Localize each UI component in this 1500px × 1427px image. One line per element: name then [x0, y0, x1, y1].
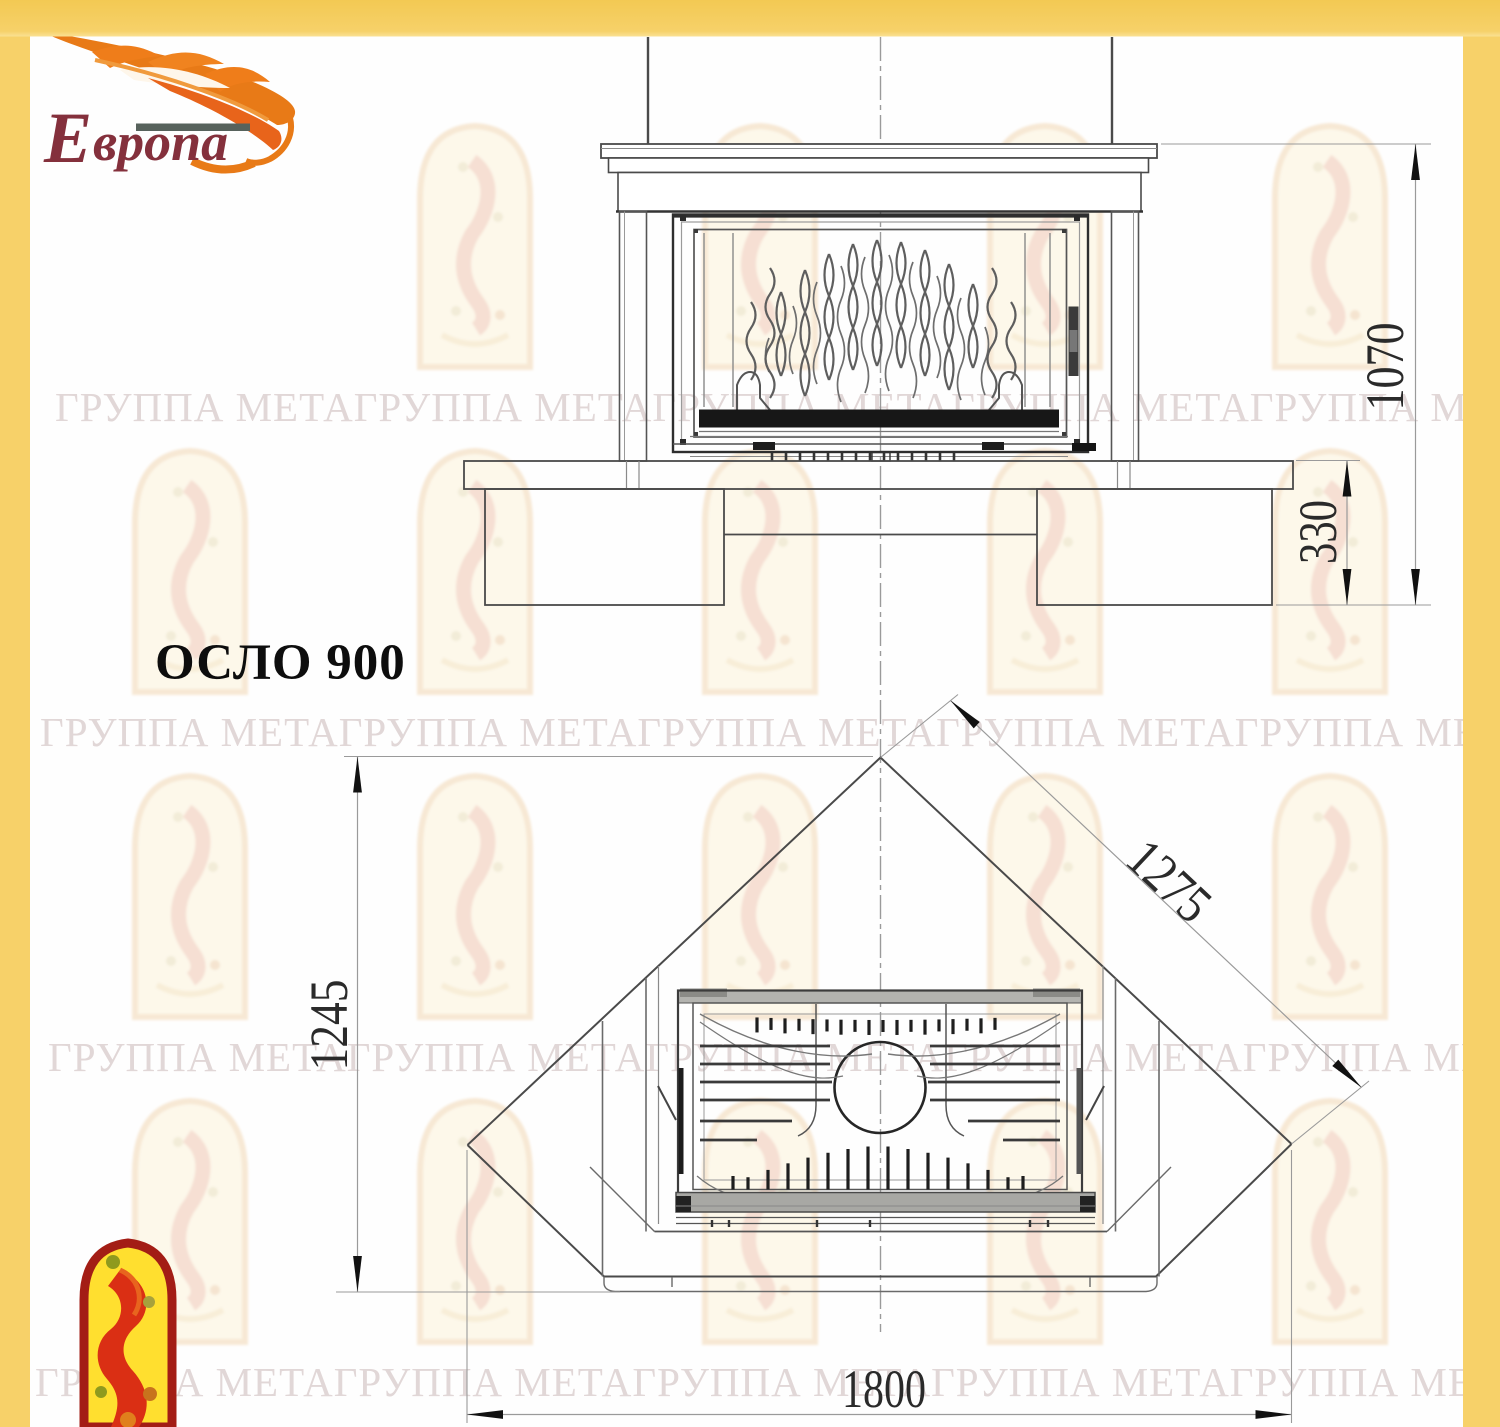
svg-text:1800: 1800: [842, 1359, 926, 1419]
svg-text:1275: 1275: [1115, 828, 1223, 935]
svg-text:1245: 1245: [299, 980, 359, 1071]
svg-text:ГРУППА МЕТАГРУППА МЕТАГРУППА М: ГРУППА МЕТАГРУППА МЕТАГРУППА МЕТАГРУППА …: [48, 1034, 1500, 1080]
svg-text:ОСЛО 900: ОСЛО 900: [155, 635, 406, 691]
svg-text:1070: 1070: [1355, 323, 1415, 411]
svg-text:ГРУППА МЕТАГРУППА МЕТАГРУППА М: ГРУППА МЕТАГРУППА МЕТАГРУППА МЕТАГРУППА …: [40, 709, 1500, 755]
svg-text:вропа: вропа: [93, 112, 228, 172]
svg-text:ГРУППА МЕТАГРУППА МЕТАГРУППА М: ГРУППА МЕТАГРУППА МЕТАГРУППА МЕТАГРУППА …: [35, 1359, 1500, 1405]
svg-text:Е: Е: [43, 98, 92, 178]
svg-text:330: 330: [1288, 500, 1348, 564]
